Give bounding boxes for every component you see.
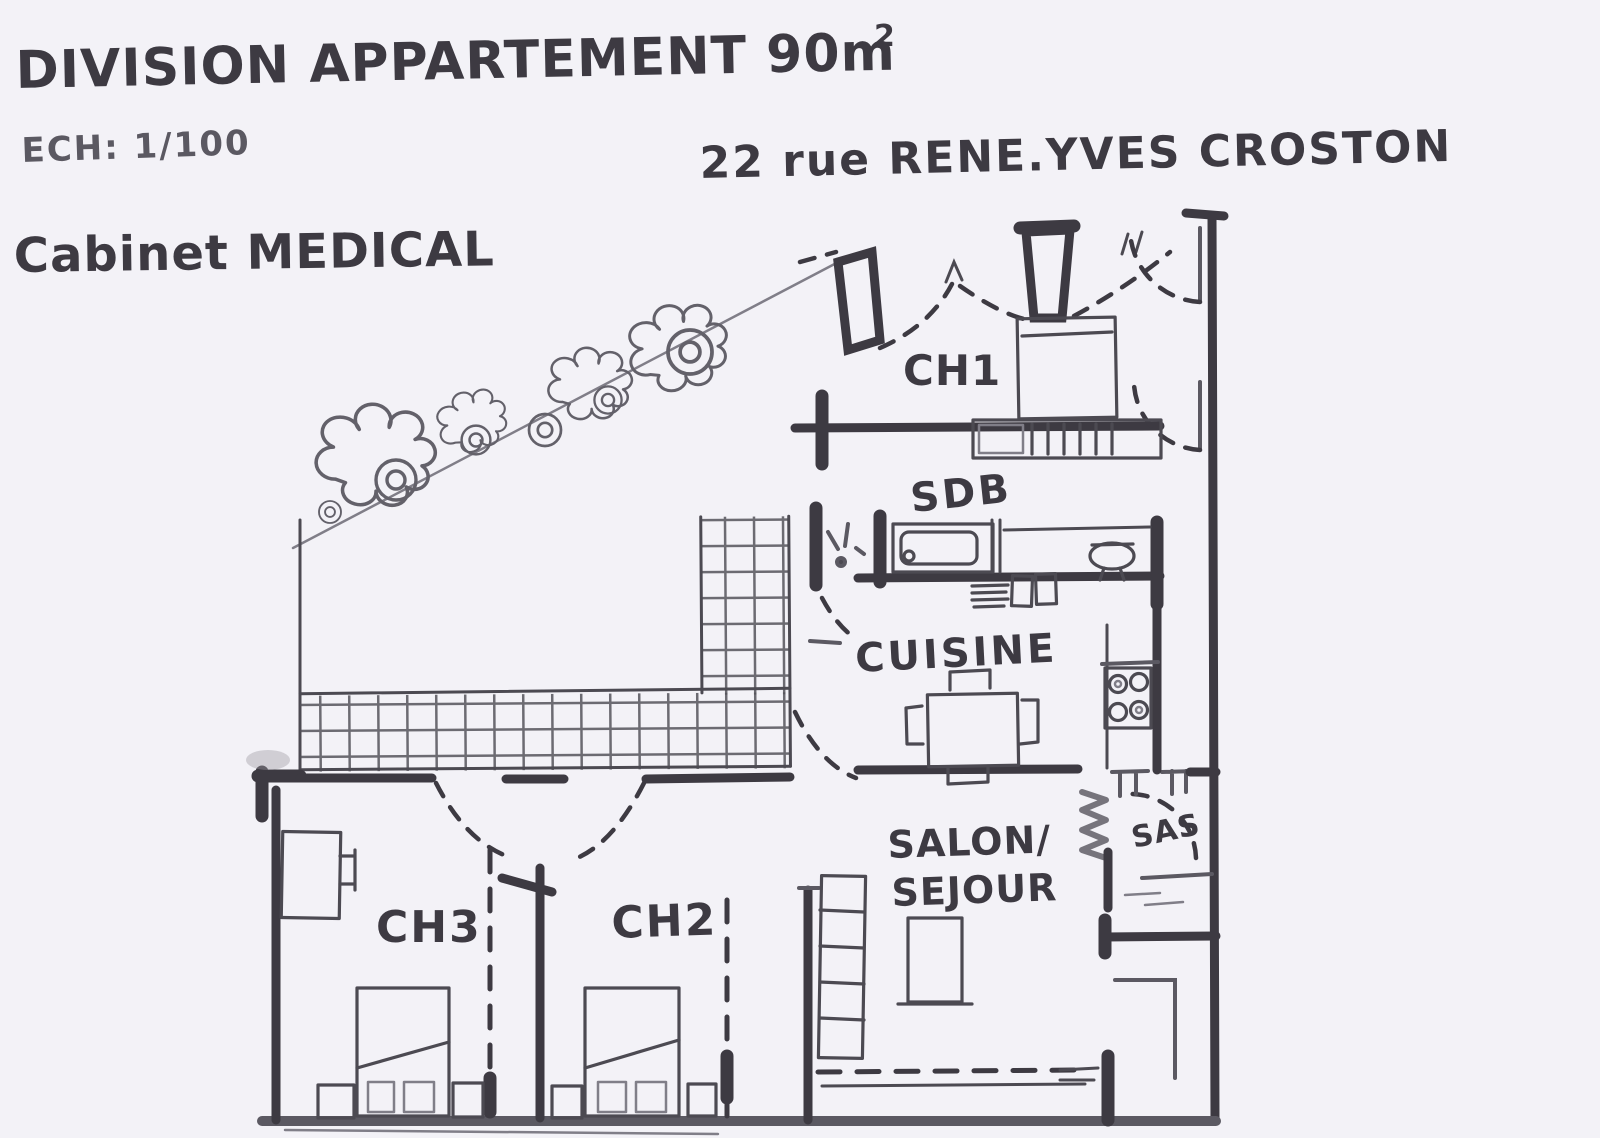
scale-label: ECH: 1/100 [21,123,251,171]
pencil-smudge [246,750,290,770]
room-label-ch2: CH2 [611,894,718,949]
bookshelf [818,876,865,1059]
sheet-title-superscript: 2 [874,19,895,54]
nightstand [552,1086,582,1118]
sheet-title: DIVISION APPARTEMENT 90m [15,23,896,101]
drain-grate [972,585,1008,607]
project-type-label: Cabinet MEDICAL [13,221,495,284]
door-arc-salon [795,712,856,778]
window-bay-line [822,1084,1085,1086]
bed-ch3 [318,988,483,1118]
closet-partition [1060,980,1175,1120]
bedroom-block-wall-top [300,777,790,779]
room-label-salon-line1: SALON/ [887,817,1052,867]
sofa-table [898,918,972,1004]
window-arc-2 [960,286,1028,320]
bed-ch1 [1017,317,1117,419]
radiator [1082,792,1106,858]
ch1-bedroom: CH1 [795,226,1200,464]
door-arc-kitchen [822,598,858,640]
room-label-sas: SAS [1128,807,1203,856]
window-leaf-2 [1026,230,1070,318]
window-bay-dashed [818,1070,1080,1072]
door-arc-entry-2 [1134,384,1200,450]
sas-vestibule: SAS [1060,771,1216,1120]
room-label-salon-line2: SEJOUR [891,865,1058,915]
nightstand [318,1085,354,1118]
garden-bushes [311,300,732,523]
floor-plan-canvas: DIVISION APPARTEMENT 90m 2 ECH: 1/100 22… [0,0,1600,1138]
bathtub [893,524,993,572]
scanned-floor-plan-sketch: DIVISION APPARTEMENT 90m 2 ECH: 1/100 22… [0,0,1600,1138]
sdb-bathroom: SDB [858,466,1160,604]
window-arc-1 [880,284,952,348]
door-arc-ch3 [436,783,504,855]
sas-doormat [1112,771,1196,796]
window-arrow-mark [946,262,962,282]
scan-edge-line [285,1130,718,1134]
attention-mark [828,524,864,566]
nightstand [453,1083,483,1117]
sdb-wall-bottom [858,576,1160,578]
room-label-sdb: SDB [908,466,1014,522]
outer-wall-top-right-cap [1186,213,1224,216]
terrace-horizontal-strip [300,692,791,771]
door-arc-ch2 [572,783,644,860]
nightstand [688,1084,716,1116]
wardrobe-ch3 [281,832,355,919]
room-label-ch3: CH3 [376,902,482,953]
room-label-cuisine: CUISINE [854,625,1058,682]
stove-4-burners [1102,662,1158,728]
ch1-wall-bottom [795,426,1160,428]
bedroom-block: CH3 CH2 [281,777,790,1118]
terrace-vertical-strip [701,516,790,695]
address-label: 22 rue RENE.YVES CROSTON [699,121,1453,189]
window-leaf-1 [838,252,880,350]
tiled-terrace [299,516,791,771]
kitchen-wall-bottom [858,769,1078,770]
bed-ch2 [552,988,716,1118]
outer-wall-right [1212,216,1215,1120]
room-label-ch1: CH1 [903,346,1001,395]
window-arc-3 [1074,252,1170,316]
sas-wall-bottom [1105,936,1216,937]
